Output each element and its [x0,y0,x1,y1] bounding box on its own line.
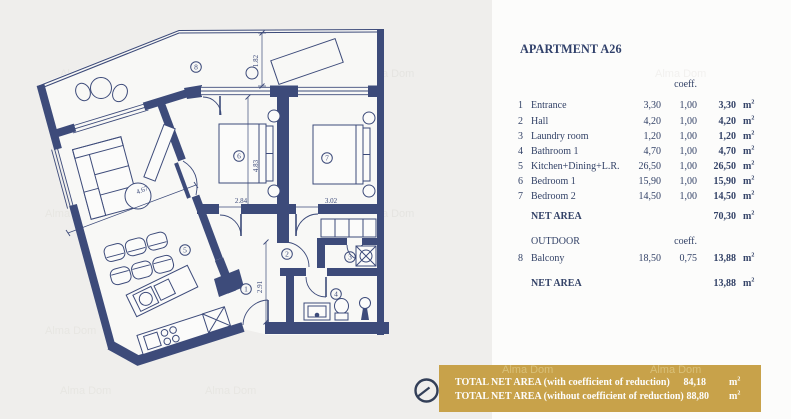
svg-text:1: 1 [244,285,248,294]
svg-text:2.84: 2.84 [235,197,248,205]
svg-text:7: 7 [325,154,329,163]
svg-text:4: 4 [334,290,338,299]
svg-text:6: 6 [237,152,241,161]
svg-text:3.02: 3.02 [325,197,338,205]
svg-text:2: 2 [285,250,289,259]
svg-text:2.91: 2.91 [256,280,264,293]
svg-text:4.83: 4.83 [252,159,260,172]
svg-text:1.82: 1.82 [252,54,260,67]
svg-text:5: 5 [183,246,187,255]
svg-text:8: 8 [194,63,198,72]
svg-text:3: 3 [348,253,352,262]
